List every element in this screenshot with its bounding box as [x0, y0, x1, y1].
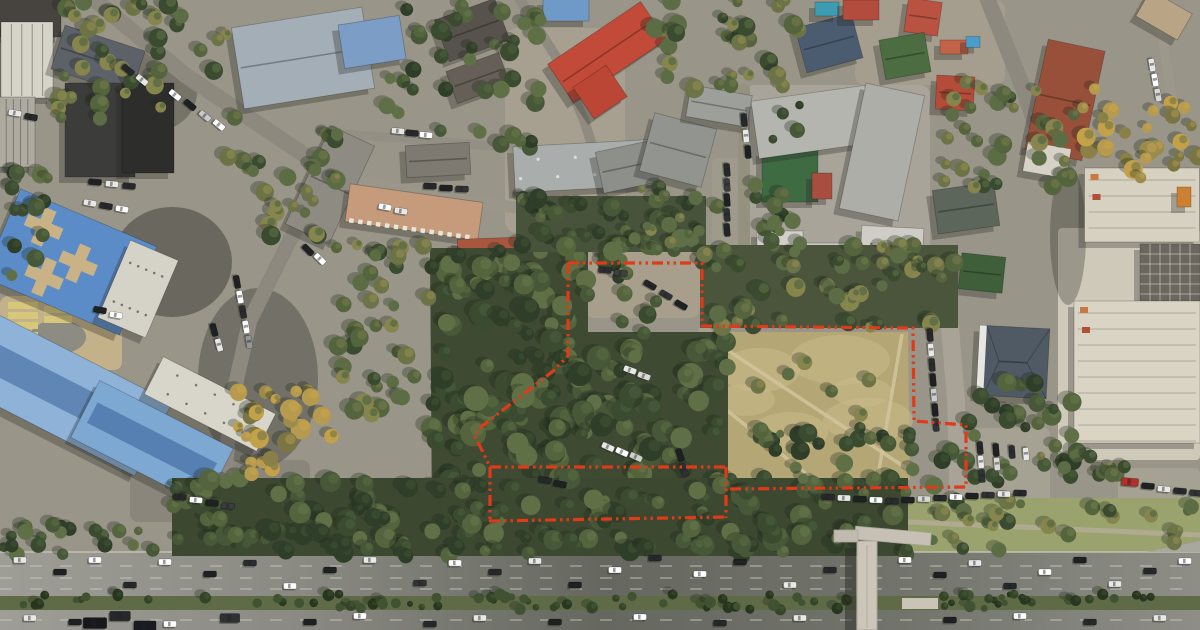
car: [204, 499, 219, 508]
car: [996, 491, 1011, 499]
car: [487, 569, 502, 577]
car: [932, 495, 947, 503]
car: [172, 493, 187, 502]
car: [992, 456, 1001, 471]
car: [647, 555, 662, 563]
dry-field: [704, 332, 913, 484]
car: [980, 492, 995, 500]
pool: [966, 37, 980, 48]
car: [929, 387, 938, 402]
car: [964, 493, 979, 501]
car: [454, 186, 469, 194]
car: [1002, 583, 1017, 591]
car: [991, 442, 1000, 457]
aerial-site-photo: [0, 0, 1200, 630]
car: [930, 402, 939, 417]
car: [162, 621, 177, 629]
car: [1172, 487, 1187, 496]
median-shelter: [902, 598, 938, 609]
car: [132, 621, 156, 630]
car: [52, 569, 67, 577]
car: [202, 571, 217, 579]
car: [977, 468, 986, 483]
car: [567, 582, 582, 590]
car: [121, 182, 136, 191]
car: [916, 496, 931, 504]
car: [852, 496, 867, 504]
car: [219, 614, 240, 625]
car: [836, 495, 851, 503]
car: [1156, 485, 1171, 494]
car: [1021, 446, 1030, 461]
red-court: [812, 173, 832, 199]
construction-slab: [1074, 301, 1200, 443]
car: [1140, 482, 1155, 491]
car: [782, 582, 797, 590]
car: [104, 180, 119, 189]
car: [390, 127, 405, 136]
car: [527, 558, 542, 566]
car: [1012, 490, 1027, 498]
car: [418, 131, 433, 140]
car: [1142, 568, 1157, 576]
car: [743, 144, 752, 159]
car: [712, 620, 727, 628]
car: [22, 615, 37, 623]
car: [820, 494, 835, 502]
car: [188, 496, 203, 505]
car: [362, 557, 377, 565]
car: [1152, 615, 1167, 623]
car: [12, 557, 27, 565]
car: [1120, 477, 1139, 488]
car: [1007, 444, 1016, 459]
car: [932, 572, 947, 580]
car: [404, 129, 419, 138]
car: [1082, 619, 1097, 627]
car: [739, 112, 748, 127]
car: [741, 128, 750, 143]
car: [122, 582, 137, 590]
car: [352, 613, 367, 621]
small-dark-building: [405, 142, 471, 177]
car: [927, 357, 936, 372]
car: [422, 183, 437, 191]
car: [722, 177, 731, 192]
car: [884, 498, 899, 506]
car: [942, 617, 957, 625]
car: [1012, 613, 1027, 621]
car: [547, 619, 562, 627]
car: [692, 571, 707, 579]
car: [732, 559, 747, 567]
satellite-scene: [0, 0, 1200, 630]
car: [722, 222, 731, 237]
car: [157, 559, 172, 567]
car: [438, 185, 453, 193]
car: [220, 502, 235, 511]
car: [1107, 581, 1122, 589]
car: [302, 619, 317, 627]
car: [632, 614, 647, 622]
car: [87, 557, 102, 565]
car: [926, 342, 935, 357]
blue-roof-building: [543, 0, 589, 21]
white-office-building: [1, 22, 53, 98]
car: [597, 266, 612, 275]
car: [108, 611, 130, 622]
car: [722, 192, 731, 207]
car: [722, 162, 731, 177]
shadowed-tower: [122, 83, 174, 173]
blue-roof-building: [338, 15, 406, 68]
car: [412, 580, 427, 588]
car: [1177, 558, 1192, 566]
car: [82, 618, 107, 630]
red-roof-house: [843, 0, 879, 20]
red-tile-house: [904, 0, 942, 36]
car: [975, 440, 984, 455]
green-roof-house: [879, 32, 931, 79]
car: [422, 621, 437, 629]
car: [1037, 569, 1052, 577]
car: [242, 560, 257, 568]
car: [472, 615, 487, 623]
car: [607, 567, 622, 575]
car: [948, 494, 963, 502]
car: [1072, 557, 1087, 565]
dark-green-roof-building: [958, 253, 1006, 293]
car: [87, 178, 102, 187]
car: [322, 567, 337, 575]
gray-building: [0, 97, 35, 167]
car: [613, 269, 628, 278]
construction-crane: [1177, 187, 1191, 207]
car: [1188, 489, 1200, 498]
car: [925, 327, 934, 342]
car: [931, 417, 940, 432]
car: [447, 560, 462, 568]
car: [282, 583, 297, 591]
car: [900, 497, 915, 505]
car: [928, 372, 937, 387]
teal-roof-house: [815, 2, 839, 16]
car: [67, 619, 82, 627]
above-field-trees: [689, 235, 963, 336]
car: [897, 557, 912, 565]
car: [792, 615, 807, 623]
car: [967, 560, 982, 568]
car: [822, 567, 837, 575]
car: [976, 454, 985, 469]
car: [722, 207, 731, 222]
car: [868, 497, 883, 505]
